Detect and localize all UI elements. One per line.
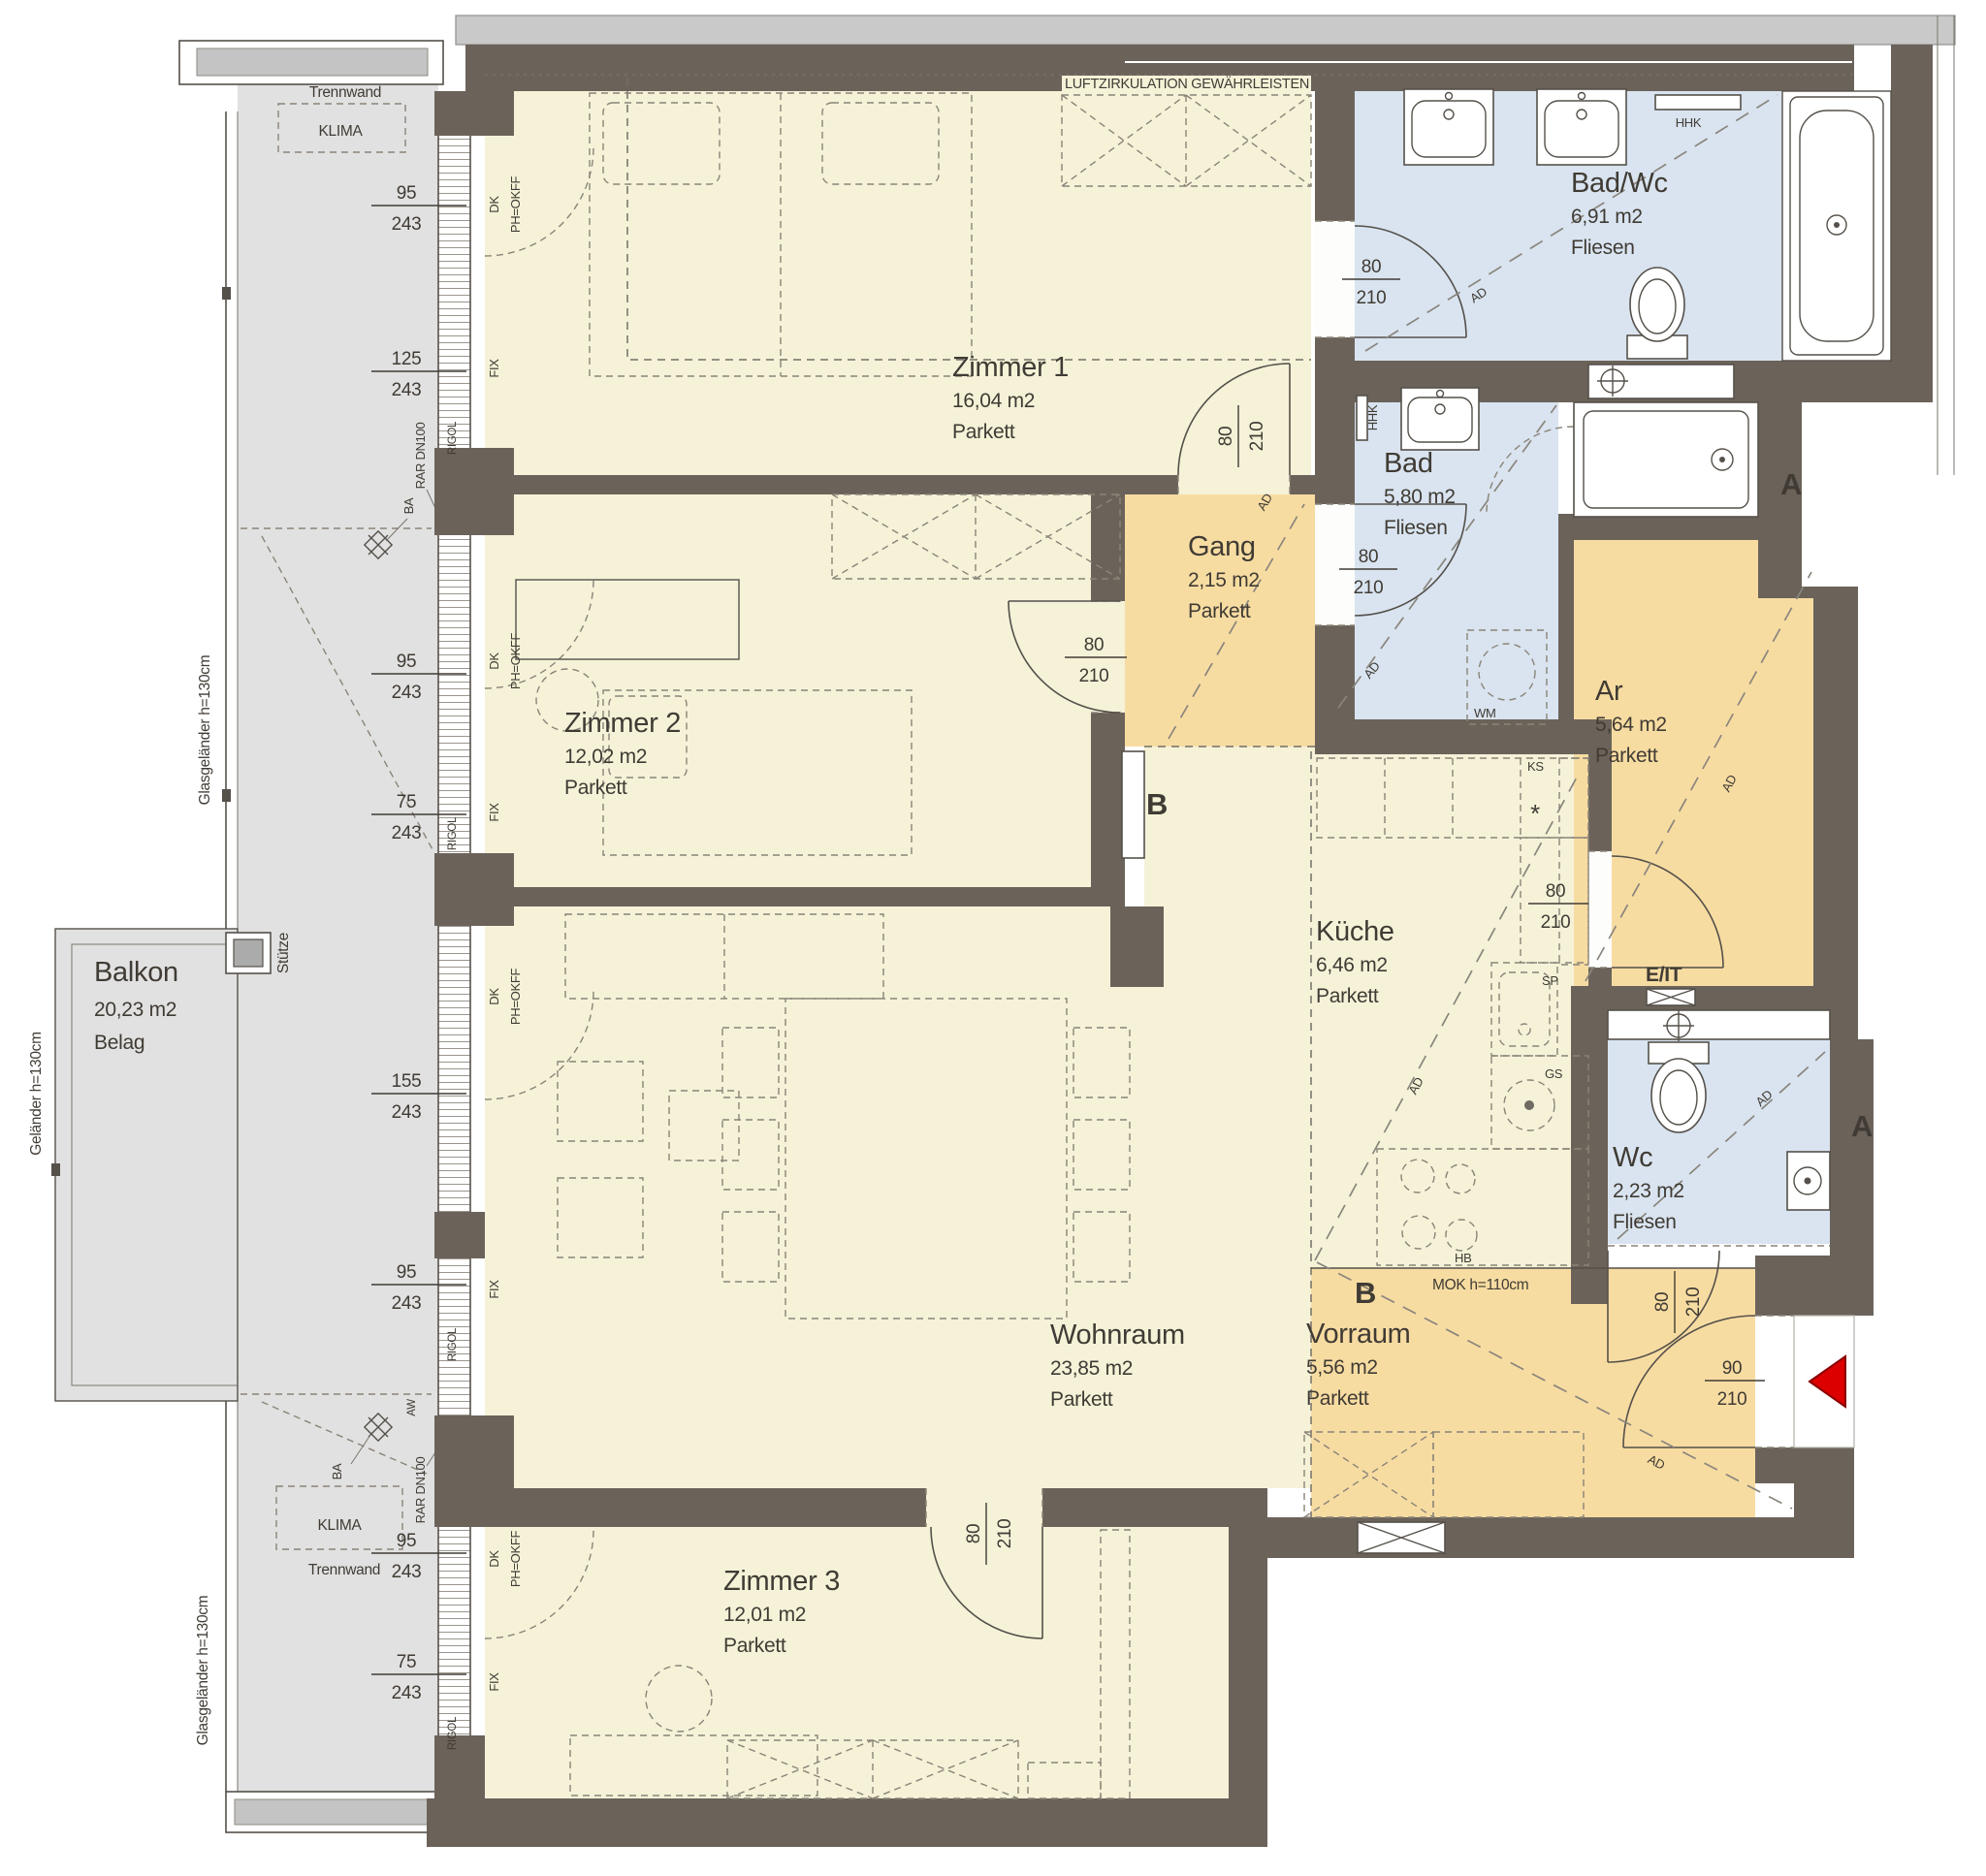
- svg-text:Balkon: Balkon: [94, 957, 178, 988]
- eit-label: E/IT: [1646, 964, 1682, 986]
- svg-text:2,15 m2: 2,15 m2: [1188, 569, 1260, 591]
- rar-label: RAR DN100: [413, 1457, 428, 1524]
- svg-text:Parkett: Parkett: [1050, 1388, 1113, 1411]
- svg-text:5,56 m2: 5,56 m2: [1306, 1356, 1378, 1379]
- ph-okff-label: PH=OKFF: [508, 969, 523, 1026]
- toilet: [1649, 1042, 1709, 1132]
- svg-text:2,23 m2: 2,23 m2: [1613, 1180, 1684, 1202]
- window-band: [438, 111, 470, 1798]
- svg-text:Ar: Ar: [1595, 676, 1623, 707]
- star-label: *: [1530, 799, 1540, 828]
- ba-label: BA: [330, 1463, 344, 1479]
- svg-text:Bad: Bad: [1384, 448, 1433, 479]
- svg-text:80: 80: [1546, 881, 1566, 902]
- wm-label: WM: [1474, 706, 1496, 720]
- svg-text:95: 95: [397, 652, 417, 672]
- svg-text:5,64 m2: 5,64 m2: [1595, 714, 1667, 736]
- sp-label: SP: [1542, 973, 1558, 988]
- svg-text:Parkett: Parkett: [1316, 985, 1379, 1007]
- trennwand-label-bottom: Trennwand: [308, 1562, 380, 1578]
- svg-text:80: 80: [1084, 635, 1105, 655]
- room-label-gang: Gang 2,15 m2 Parkett: [1188, 531, 1260, 622]
- dk-label: DK: [487, 652, 501, 670]
- svg-text:210: 210: [1354, 578, 1384, 598]
- svg-text:Fliesen: Fliesen: [1571, 237, 1635, 259]
- svg-text:243: 243: [392, 823, 422, 843]
- svg-text:Parkett: Parkett: [952, 421, 1015, 443]
- svg-text:Fliesen: Fliesen: [1613, 1211, 1677, 1233]
- svg-text:Wc: Wc: [1613, 1142, 1652, 1173]
- svg-text:90: 90: [1722, 1358, 1743, 1379]
- svg-text:210: 210: [1357, 288, 1387, 308]
- svg-text:Zimmer 1: Zimmer 1: [952, 352, 1069, 383]
- svg-text:Parkett: Parkett: [1306, 1387, 1369, 1410]
- svg-text:95: 95: [397, 183, 417, 204]
- mok-label: MOK h=110cm: [1432, 1277, 1528, 1293]
- ph-okff-label: PH=OKFF: [508, 633, 523, 690]
- hhk-label: HHK: [1676, 115, 1702, 130]
- section-marker-b2: B: [1355, 1276, 1376, 1310]
- svg-text:Parkett: Parkett: [723, 1635, 786, 1657]
- hb-label: HB: [1455, 1251, 1471, 1265]
- svg-text:Bad/Wc: Bad/Wc: [1571, 168, 1668, 199]
- svg-text:210: 210: [1683, 1288, 1704, 1318]
- svg-text:20,23 m2: 20,23 m2: [94, 999, 176, 1021]
- svg-text:210: 210: [1541, 912, 1571, 933]
- svg-text:Parkett: Parkett: [1188, 600, 1251, 622]
- svg-text:210: 210: [1717, 1389, 1747, 1410]
- glasgelaender-label-top: Glasgeländer h=130cm: [197, 655, 213, 806]
- svg-text:210: 210: [1247, 422, 1267, 452]
- ph-okff-label: PH=OKFF: [508, 176, 523, 234]
- sink: [1404, 89, 1493, 165]
- fix-label: FIX: [487, 1280, 501, 1299]
- gelaender-label: Geländer h=130cm: [28, 1032, 45, 1155]
- svg-text:243: 243: [392, 1102, 422, 1123]
- section-marker-a2: A: [1851, 1109, 1873, 1143]
- ks-label: KS: [1527, 759, 1544, 774]
- svg-text:80: 80: [1652, 1292, 1673, 1313]
- gs-label: GS: [1545, 1066, 1563, 1081]
- svg-text:80: 80: [964, 1524, 984, 1544]
- toilet: [1627, 268, 1687, 359]
- sink: [1537, 89, 1626, 165]
- klima-label-top: KLIMA: [318, 123, 363, 140]
- room-fill-zimmer3: [485, 1527, 1229, 1798]
- svg-text:12,02 m2: 12,02 m2: [564, 746, 647, 768]
- rigol-label: RIGOL: [447, 1716, 459, 1750]
- svg-text:Zimmer 3: Zimmer 3: [723, 1566, 840, 1597]
- svg-text:243: 243: [392, 380, 422, 400]
- svg-text:80: 80: [1216, 427, 1236, 447]
- svg-text:243: 243: [392, 1562, 422, 1582]
- svg-text:210: 210: [1079, 666, 1109, 686]
- svg-text:Vorraum: Vorraum: [1306, 1319, 1411, 1350]
- svg-text:80: 80: [1359, 547, 1379, 567]
- fix-label: FIX: [487, 359, 501, 378]
- floor-plan: Zimmer 1 16,04 m2 Parkett Zimmer 2 12,02…: [0, 0, 1986, 1876]
- svg-text:Wohnraum: Wohnraum: [1050, 1320, 1185, 1351]
- shower: [1574, 402, 1758, 517]
- svg-text:210: 210: [995, 1519, 1015, 1549]
- section-marker-a1: A: [1780, 467, 1802, 501]
- room-fill-zimmer1: [485, 91, 1311, 475]
- svg-text:Parkett: Parkett: [564, 777, 627, 799]
- radiator: [1655, 95, 1741, 110]
- svg-text:6,91 m2: 6,91 m2: [1571, 206, 1643, 228]
- svg-text:75: 75: [397, 1652, 417, 1672]
- klima-label-bottom: KLIMA: [317, 1517, 362, 1534]
- svg-text:125: 125: [392, 349, 422, 369]
- svg-text:5,80 m2: 5,80 m2: [1384, 486, 1456, 508]
- section-marker-b1: B: [1146, 787, 1168, 821]
- svg-text:95: 95: [397, 1262, 417, 1283]
- svg-text:Gang: Gang: [1188, 531, 1256, 562]
- svg-text:80: 80: [1361, 257, 1382, 277]
- svg-text:Zimmer 2: Zimmer 2: [564, 708, 681, 739]
- svg-text:Parkett: Parkett: [1595, 745, 1658, 767]
- dk-label: DK: [487, 196, 501, 213]
- svg-text:243: 243: [392, 1293, 422, 1314]
- room-fill-zimmer2: [485, 494, 1091, 887]
- svg-text:Küche: Küche: [1316, 916, 1394, 947]
- ba-label: BA: [401, 497, 416, 514]
- luftzirkulation-note: LUFTZIRKULATION GEWÄHRLEISTEN: [1065, 76, 1309, 92]
- fix-label: FIX: [487, 803, 501, 822]
- svg-text:6,46 m2: 6,46 m2: [1316, 954, 1388, 976]
- svg-text:Fliesen: Fliesen: [1384, 517, 1448, 539]
- room-fill-kueche: [1144, 747, 1588, 1268]
- svg-text:243: 243: [392, 1683, 422, 1703]
- hhk-label-bad: HHK: [1365, 404, 1380, 430]
- stuetze-label: Stütze: [275, 933, 292, 973]
- svg-text:23,85 m2: 23,85 m2: [1050, 1357, 1133, 1380]
- aw-label: AW: [406, 1399, 418, 1416]
- svg-text:95: 95: [397, 1531, 417, 1551]
- dk-label: DK: [487, 1550, 501, 1568]
- rigol-label: RIGOL: [447, 421, 459, 455]
- fix-label: FIX: [487, 1672, 501, 1692]
- ph-okff-label: PH=OKFF: [508, 1531, 523, 1588]
- dk-label: DK: [487, 988, 501, 1005]
- rigol-label: RIGOL: [447, 1327, 459, 1361]
- svg-text:75: 75: [397, 792, 417, 812]
- trennwand-label-top: Trennwand: [309, 84, 381, 101]
- svg-text:16,04 m2: 16,04 m2: [952, 390, 1035, 412]
- svg-text:Belag: Belag: [94, 1032, 144, 1054]
- sink: [1401, 388, 1479, 450]
- glasgelaender-label-bottom: Glasgeländer h=130cm: [195, 1596, 211, 1746]
- svg-text:243: 243: [392, 683, 422, 703]
- corner-sink: [1787, 1152, 1830, 1210]
- rar-label: RAR DN100: [413, 423, 428, 490]
- svg-text:12,01 m2: 12,01 m2: [723, 1604, 806, 1626]
- svg-text:243: 243: [392, 214, 422, 235]
- svg-text:155: 155: [392, 1071, 422, 1092]
- rigol-label: RIGOL: [447, 816, 459, 850]
